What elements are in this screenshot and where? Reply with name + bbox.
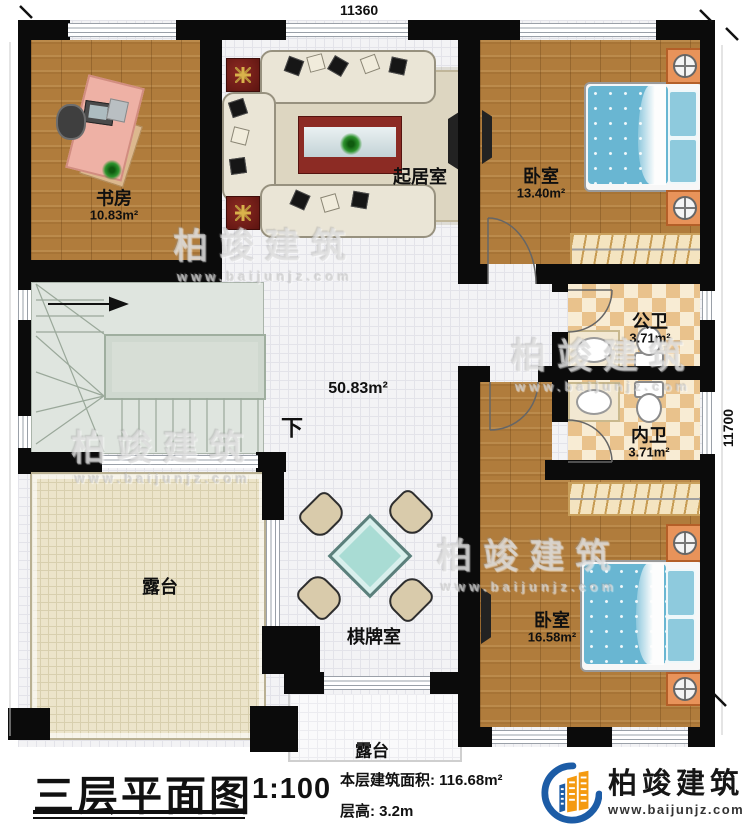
tv-bedroom1-icon bbox=[482, 110, 492, 164]
company-url: www.baijunjz.com bbox=[608, 802, 744, 817]
bed-bedroom2 bbox=[580, 560, 704, 672]
blanket-fold bbox=[636, 563, 664, 665]
end-table bbox=[226, 58, 260, 92]
tv-bedroom2-icon bbox=[481, 588, 491, 644]
pillow bbox=[666, 617, 696, 663]
wall bbox=[688, 727, 715, 747]
wall bbox=[408, 20, 520, 40]
plant-icon bbox=[340, 133, 362, 155]
wall bbox=[200, 40, 222, 260]
wall bbox=[567, 727, 612, 747]
company-name: 柏竣建筑 bbox=[608, 770, 744, 799]
window bbox=[492, 730, 567, 744]
terrace-post bbox=[250, 706, 298, 752]
room-label-public-bath: 公卫3.71m² bbox=[629, 312, 670, 347]
wall bbox=[458, 264, 488, 284]
closet-bedroom1 bbox=[570, 233, 704, 266]
nightstand bbox=[666, 672, 704, 706]
wall bbox=[700, 40, 715, 291]
dimension-top: 11360 bbox=[340, 2, 378, 18]
room-label-bedroom1: 卧室13.40m² bbox=[517, 167, 565, 202]
room-label-bedroom2: 卧室16.58m² bbox=[528, 611, 576, 646]
wall bbox=[552, 284, 568, 292]
room-label-chess: 棋牌室 bbox=[347, 627, 401, 647]
floor-area-line: 本层建筑面积: 116.68m² bbox=[340, 769, 503, 790]
room-label-private-bath: 内卫3.71m² bbox=[628, 426, 669, 461]
closet-bedroom2 bbox=[568, 482, 704, 516]
nightstand bbox=[666, 190, 704, 226]
plant-icon bbox=[102, 160, 122, 180]
sofa-pillow bbox=[229, 157, 247, 175]
window bbox=[102, 455, 258, 468]
stair-landing bbox=[104, 334, 266, 400]
window bbox=[612, 730, 688, 744]
wall bbox=[458, 727, 492, 747]
room-label-living: 起居室 bbox=[393, 167, 447, 187]
wall bbox=[700, 320, 715, 392]
corridor-floor bbox=[480, 382, 552, 480]
window bbox=[68, 23, 176, 37]
window bbox=[702, 291, 715, 320]
wall bbox=[176, 20, 286, 40]
table-ornament-icon bbox=[235, 67, 251, 83]
wall bbox=[284, 672, 324, 694]
company-logo-icon bbox=[540, 762, 602, 824]
plan-scale: 1:100 bbox=[252, 773, 331, 806]
wall bbox=[700, 454, 715, 747]
lamp-icon bbox=[673, 196, 697, 220]
wall bbox=[552, 332, 568, 422]
dimension-right: 11700 bbox=[720, 400, 736, 456]
nightstand bbox=[666, 524, 704, 562]
lamp-icon bbox=[673, 677, 697, 701]
wall bbox=[568, 366, 715, 380]
floor-plan-page: 11360 11700 书房10.83m² 起居室 卧室13.40m² 公卫3.… bbox=[0, 0, 750, 833]
room-label-study: 书房10.83m² bbox=[90, 189, 138, 224]
window bbox=[702, 392, 715, 454]
sofa-pillow bbox=[389, 57, 408, 76]
window bbox=[18, 290, 31, 320]
wall bbox=[656, 20, 715, 40]
wall bbox=[536, 264, 715, 284]
pillow bbox=[668, 90, 698, 138]
lamp-icon bbox=[673, 54, 697, 78]
pillow bbox=[666, 569, 696, 617]
window bbox=[520, 23, 656, 37]
table-ornament-icon bbox=[235, 205, 251, 221]
sofa-bottom bbox=[260, 184, 436, 238]
wall bbox=[458, 40, 480, 264]
nightstand bbox=[666, 48, 704, 84]
title-underline-thin bbox=[33, 817, 245, 819]
wall bbox=[18, 452, 102, 472]
room-label-terrace-left: 露台 bbox=[142, 577, 178, 597]
desk-chair bbox=[56, 104, 86, 140]
window bbox=[286, 23, 408, 37]
terrace-post bbox=[8, 708, 50, 740]
pillow bbox=[668, 138, 698, 184]
lamp-icon bbox=[673, 531, 697, 555]
wall bbox=[430, 672, 460, 694]
wall bbox=[458, 366, 480, 747]
toilet-icon bbox=[636, 393, 662, 423]
bed-bedroom1 bbox=[584, 82, 704, 192]
wall bbox=[18, 260, 222, 282]
blanket-fold bbox=[638, 85, 666, 185]
wall bbox=[18, 320, 31, 416]
wall bbox=[18, 20, 70, 40]
wall bbox=[18, 40, 31, 262]
sink-icon bbox=[576, 389, 612, 415]
window bbox=[266, 520, 280, 626]
sink-icon bbox=[576, 337, 612, 363]
sofa-top bbox=[260, 50, 436, 104]
terrace-left-floor bbox=[30, 472, 266, 740]
wall bbox=[262, 626, 320, 674]
stairs-direction-label: 下 bbox=[281, 417, 303, 442]
sink-counter bbox=[568, 382, 620, 422]
wall bbox=[545, 460, 715, 480]
sofa-pillow bbox=[351, 191, 370, 210]
wall bbox=[262, 460, 284, 520]
window bbox=[324, 676, 430, 690]
sink-counter bbox=[568, 330, 620, 370]
coffee-table bbox=[298, 116, 402, 174]
floor-height-line: 层高: 3.2m bbox=[340, 800, 413, 821]
title-underline bbox=[33, 810, 245, 814]
company-logo: 柏竣建筑 www.baijunjz.com bbox=[540, 762, 744, 824]
wall bbox=[538, 366, 552, 382]
hall-area-label: 50.83m² bbox=[328, 380, 388, 398]
window bbox=[18, 416, 31, 448]
end-table bbox=[226, 196, 260, 230]
room-label-terrace-bottom: 露台 bbox=[355, 741, 389, 760]
wall bbox=[18, 282, 31, 290]
